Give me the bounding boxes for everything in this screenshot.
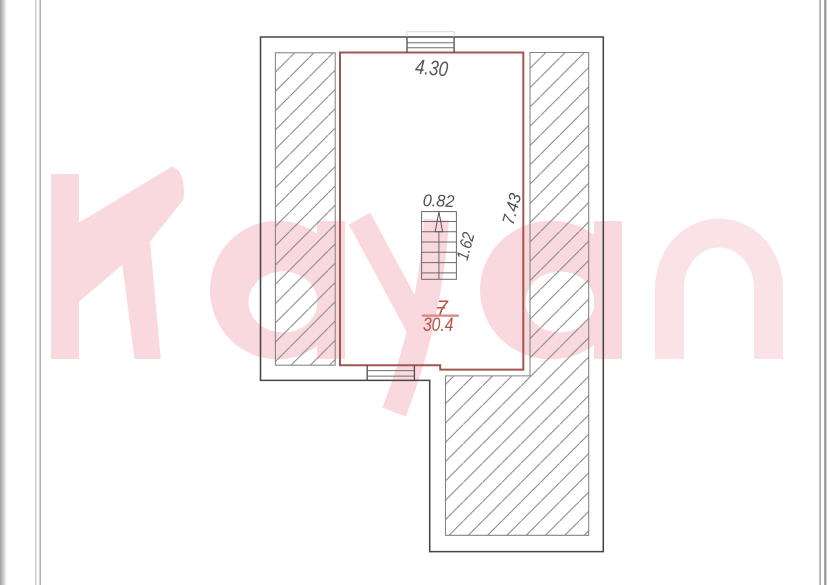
svg-text:0.82: 0.82 (423, 191, 456, 211)
svg-text:7.43: 7.43 (499, 191, 526, 227)
svg-text:4.30: 4.30 (414, 56, 449, 82)
svg-text:30.4: 30.4 (423, 314, 454, 336)
